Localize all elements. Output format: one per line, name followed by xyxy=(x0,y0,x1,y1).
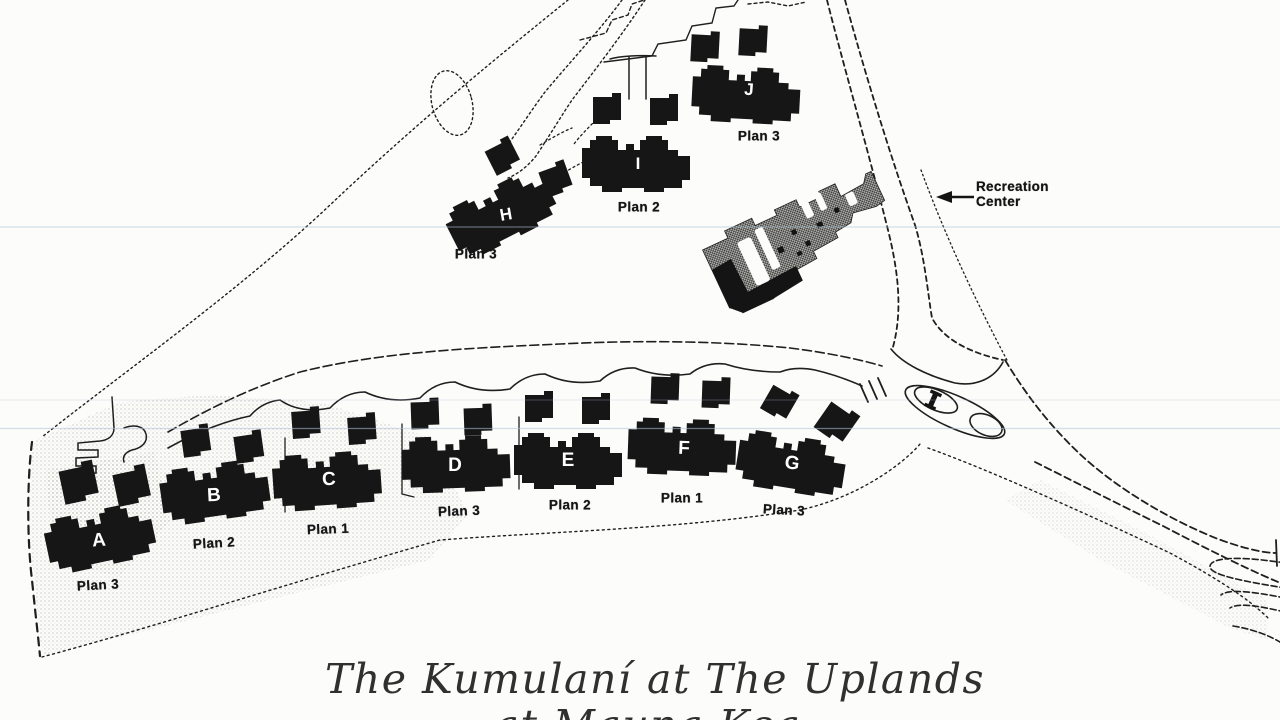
building-letter-f: F xyxy=(678,438,690,460)
building-letter-d: D xyxy=(448,455,462,477)
site-plan-page: A B C D E F G H I J Plan 3 Plan 2 Plan 1… xyxy=(0,0,1280,720)
building-plan-c: Plan 1 xyxy=(307,521,350,537)
building-letter-e: E xyxy=(562,450,575,472)
building-e-garage-1 xyxy=(525,391,553,422)
cul-de-sac-bulb xyxy=(424,66,480,140)
building-i-garage-2 xyxy=(650,94,678,125)
building-f-garage-2 xyxy=(702,377,731,409)
recreation-center-label: Recreation Center xyxy=(976,179,1049,209)
building-plan-g: Plan 3 xyxy=(763,501,806,518)
building-plan-d: Plan 3 xyxy=(438,503,481,519)
building-j-garage-2 xyxy=(738,24,768,56)
building-plan-a: Plan 3 xyxy=(77,576,120,593)
building-plan-h: Plan 3 xyxy=(455,247,497,262)
building-d-garage-1 xyxy=(410,398,439,430)
entry-road-left-edge xyxy=(827,0,898,347)
recreation-center-arrow xyxy=(936,191,974,203)
median-oval-2 xyxy=(966,409,1005,441)
upper-road-edge-1 xyxy=(500,0,622,155)
road-fork-nose xyxy=(891,349,1003,384)
building-letter-a: A xyxy=(91,530,106,553)
building-plan-e: Plan 2 xyxy=(549,498,591,513)
building-plan-i: Plan 2 xyxy=(618,200,660,215)
street-steps-j-3 xyxy=(748,2,806,6)
building-g-garage-1 xyxy=(760,381,800,422)
entrance-tick-marks xyxy=(860,378,886,402)
entrance-median xyxy=(899,375,1011,448)
building-letter-g: G xyxy=(783,452,801,476)
building-letter-c: C xyxy=(322,469,336,491)
building-plan-f: Plan 1 xyxy=(661,491,703,506)
page-title-line1: The Kumulaní at The Uplands xyxy=(325,655,985,703)
page-title-line2: at Mauna Kea xyxy=(495,701,802,720)
recreation-center-label-line1: Recreation xyxy=(976,179,1049,194)
recreation-center-label-line2: Center xyxy=(976,194,1049,209)
building-plan-j: Plan 3 xyxy=(738,129,780,144)
building-plan-b: Plan 2 xyxy=(193,534,236,551)
building-d-garage-2 xyxy=(463,404,492,436)
building-g-garage-2 xyxy=(814,398,861,446)
building-i-garage-1 xyxy=(593,93,621,124)
building-j-garage-1 xyxy=(690,30,720,62)
building-letter-b: B xyxy=(207,485,222,508)
building-e-garage-2 xyxy=(582,393,610,424)
building-letter-i: I xyxy=(636,154,641,174)
building-h-garage-1 xyxy=(483,135,522,175)
site-plan-graphic xyxy=(0,0,1280,720)
recreation-center-building xyxy=(699,164,902,317)
street-steps-j-2 xyxy=(580,0,644,40)
building-letter-j: J xyxy=(744,80,755,101)
driveway-stems-i xyxy=(610,56,656,99)
